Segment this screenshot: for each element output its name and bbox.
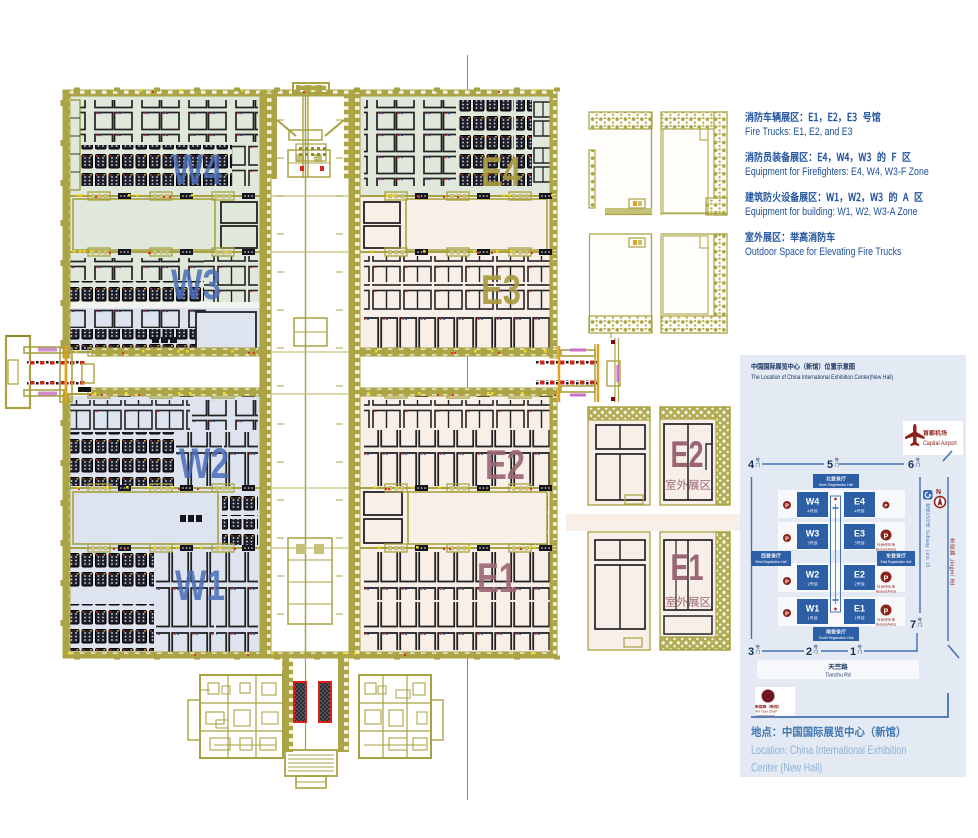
svg-text:2: 2 (806, 646, 812, 658)
svg-text:W3: W3 (806, 529, 820, 539)
svg-text:Outdoor Space for Elevating Fi: Outdoor Space for Elevating Fire Trucks (745, 246, 901, 258)
svg-text:W2: W2 (179, 440, 229, 488)
svg-text:E1: E1 (671, 547, 704, 588)
svg-text:Location: China International: Location: China International Exhibition (751, 745, 907, 757)
svg-text:Fire Trucks: E1, E2, and E3: Fire Trucks: E1, E2, and E3 (745, 126, 853, 138)
svg-text:P: P (884, 608, 889, 615)
svg-text:Buses&Autos: Buses&Autos (876, 548, 897, 552)
svg-text:East Registration Hall: East Registration Hall (881, 560, 912, 564)
svg-text:West Registration Hall: West Registration Hall (755, 560, 787, 564)
svg-text:5: 5 (827, 459, 833, 471)
svg-text:N: N (936, 489, 941, 496)
svg-text:3: 3 (748, 646, 754, 658)
svg-text:E1: E1 (477, 554, 517, 601)
svg-text:W4: W4 (806, 497, 820, 507)
svg-text:P: P (785, 536, 789, 542)
svg-text:E2: E2 (485, 441, 525, 488)
svg-text:P: P (884, 575, 889, 582)
svg-text:Buses&Autos: Buses&Autos (876, 590, 897, 594)
svg-text:Xin Guo Zhan: Xin Guo Zhan (755, 710, 777, 714)
svg-text:P: P (884, 503, 887, 508)
svg-text:E2: E2 (854, 570, 865, 580)
svg-text:Buses&Autos: Buses&Autos (876, 623, 897, 627)
svg-text:W2: W2 (806, 570, 820, 580)
svg-text:P: P (884, 533, 889, 540)
svg-text:W1: W1 (175, 562, 225, 610)
svg-text:P: P (785, 611, 789, 617)
svg-text:1: 1 (850, 646, 856, 658)
svg-text:The Location of China Internat: The Location of China International Exhi… (751, 375, 893, 382)
svg-text:North Registration Hall: North Registration Hall (819, 483, 853, 487)
svg-text:E3: E3 (481, 266, 521, 313)
svg-text:6: 6 (908, 459, 914, 471)
svg-text:Center (New Hall): Center (New Hall) (751, 763, 822, 775)
svg-text:Equipment for building: W1, W2: Equipment for building: W1, W2, W3-A Zon… (745, 206, 918, 218)
svg-text:7: 7 (910, 619, 916, 631)
svg-text:W3: W3 (171, 261, 221, 309)
svg-text:Tianzhu Rd: Tianzhu Rd (825, 673, 851, 679)
svg-text:W4: W4 (172, 146, 222, 194)
svg-text:Equipment for Firefighters: E4: Equipment for Firefighters: E4, W4, W3-F… (745, 166, 929, 178)
svg-text:P: P (785, 579, 789, 585)
svg-text:E4: E4 (854, 497, 865, 507)
svg-text:South Registration Hall: South Registration Hall (819, 636, 854, 640)
svg-text:4: 4 (748, 459, 755, 471)
svg-text:E3: E3 (854, 529, 865, 539)
svg-text:E1: E1 (854, 604, 865, 614)
svg-text:Capital Airport: Capital Airport (923, 441, 957, 447)
svg-text:W1: W1 (806, 604, 820, 614)
svg-text:E4: E4 (481, 148, 521, 195)
svg-text:E2: E2 (671, 434, 704, 475)
svg-text:P: P (785, 503, 789, 509)
